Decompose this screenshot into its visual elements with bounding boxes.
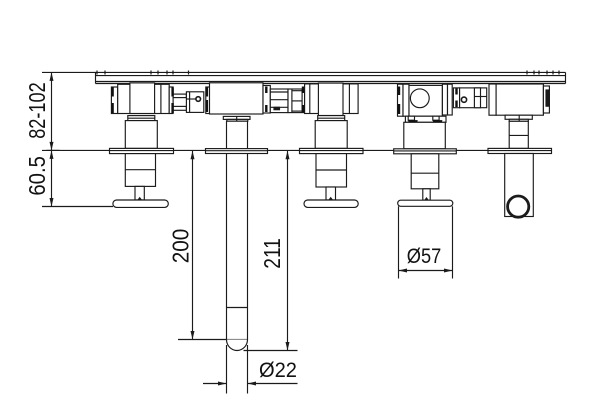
- svg-text:Ø22: Ø22: [259, 359, 297, 382]
- svg-text:82-102: 82-102: [24, 82, 50, 139]
- svg-text:200: 200: [168, 229, 194, 264]
- svg-text:Ø57: Ø57: [407, 245, 442, 268]
- svg-text:60.5: 60.5: [24, 156, 50, 196]
- svg-text:211: 211: [259, 238, 285, 269]
